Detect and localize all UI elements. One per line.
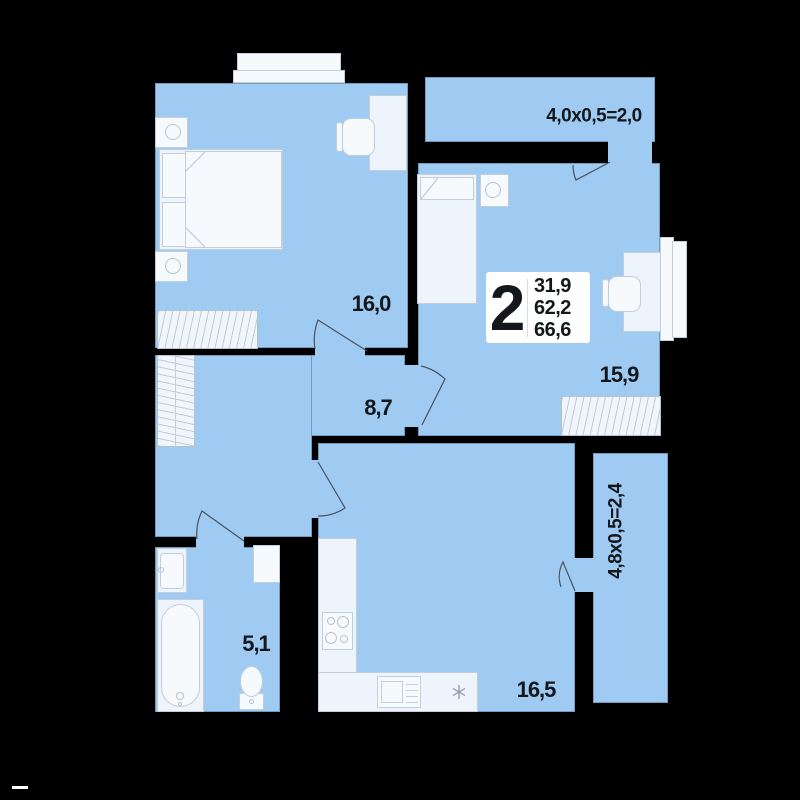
area-label-bathroom: 5,1 [242, 633, 270, 655]
blanket-icon [185, 151, 282, 248]
window-icon [233, 70, 345, 83]
area-label-balcony-top: 4,0x0,5=2,0 [546, 107, 641, 126]
wardrobe-icon [561, 396, 661, 436]
washing-machine-icon [253, 545, 280, 583]
burner-icon [325, 632, 337, 644]
pillow-icon [162, 153, 186, 198]
door-opening-balcony-top [608, 138, 652, 165]
area-living: 31,9 [534, 275, 571, 297]
drain-icon [176, 692, 184, 700]
wardrobe-icon [157, 355, 195, 447]
area-label-hallway: 8,7 [364, 397, 392, 419]
window-icon [237, 53, 341, 71]
pillow-icon [162, 202, 186, 247]
oven-vent-line [406, 702, 418, 703]
oven-vent-line [406, 690, 418, 691]
rooms-count: 2 [486, 278, 527, 338]
wardrobe-divider [175, 356, 176, 446]
door-opening-bedroom-2 [402, 365, 420, 427]
unit-info-box: 2 31,9 62,2 66,6 [486, 272, 590, 343]
lamp-icon [165, 124, 181, 140]
area-label-bedroom-1: 16,0 [352, 293, 391, 315]
lamp-icon [165, 258, 181, 274]
areas-column: 31,9 62,2 66,6 [528, 275, 571, 341]
window-icon [672, 241, 687, 338]
door-opening-kitchen [306, 460, 320, 518]
chair-icon [342, 118, 375, 156]
drain-icon [178, 702, 182, 706]
room-balcony-side [593, 453, 668, 703]
door-opening-bedroom-1 [315, 344, 365, 357]
burner-icon [337, 616, 349, 628]
oven-door [381, 681, 403, 703]
oven-vent-line [406, 696, 418, 697]
area-total: 62,2 [534, 297, 571, 319]
chair-icon [608, 276, 641, 312]
scale-mark [12, 786, 28, 789]
area-label-kitchen-living: 16,5 [517, 679, 556, 701]
area-full: 66,6 [534, 319, 571, 341]
burner-icon [340, 635, 348, 643]
wardrobe-icon [157, 310, 258, 349]
floor-plan: 16,0 15,9 8,7 5,1 16,5 4,0x0,5=2,0 4,8x0… [0, 0, 800, 800]
burner-icon [327, 617, 335, 625]
area-label-balcony-side: 4,8x0,5=2,4 [607, 483, 626, 578]
door-opening-bathroom [196, 532, 244, 549]
door-opening-balcony-side [573, 558, 595, 592]
faucet-icon [158, 567, 164, 573]
oven-vent-line [406, 684, 418, 685]
flush-button [249, 699, 254, 704]
lamp-icon [485, 182, 501, 198]
toilet-bowl [240, 666, 263, 697]
pillow-icon [420, 177, 474, 200]
area-label-bedroom-2: 15,9 [600, 364, 639, 386]
